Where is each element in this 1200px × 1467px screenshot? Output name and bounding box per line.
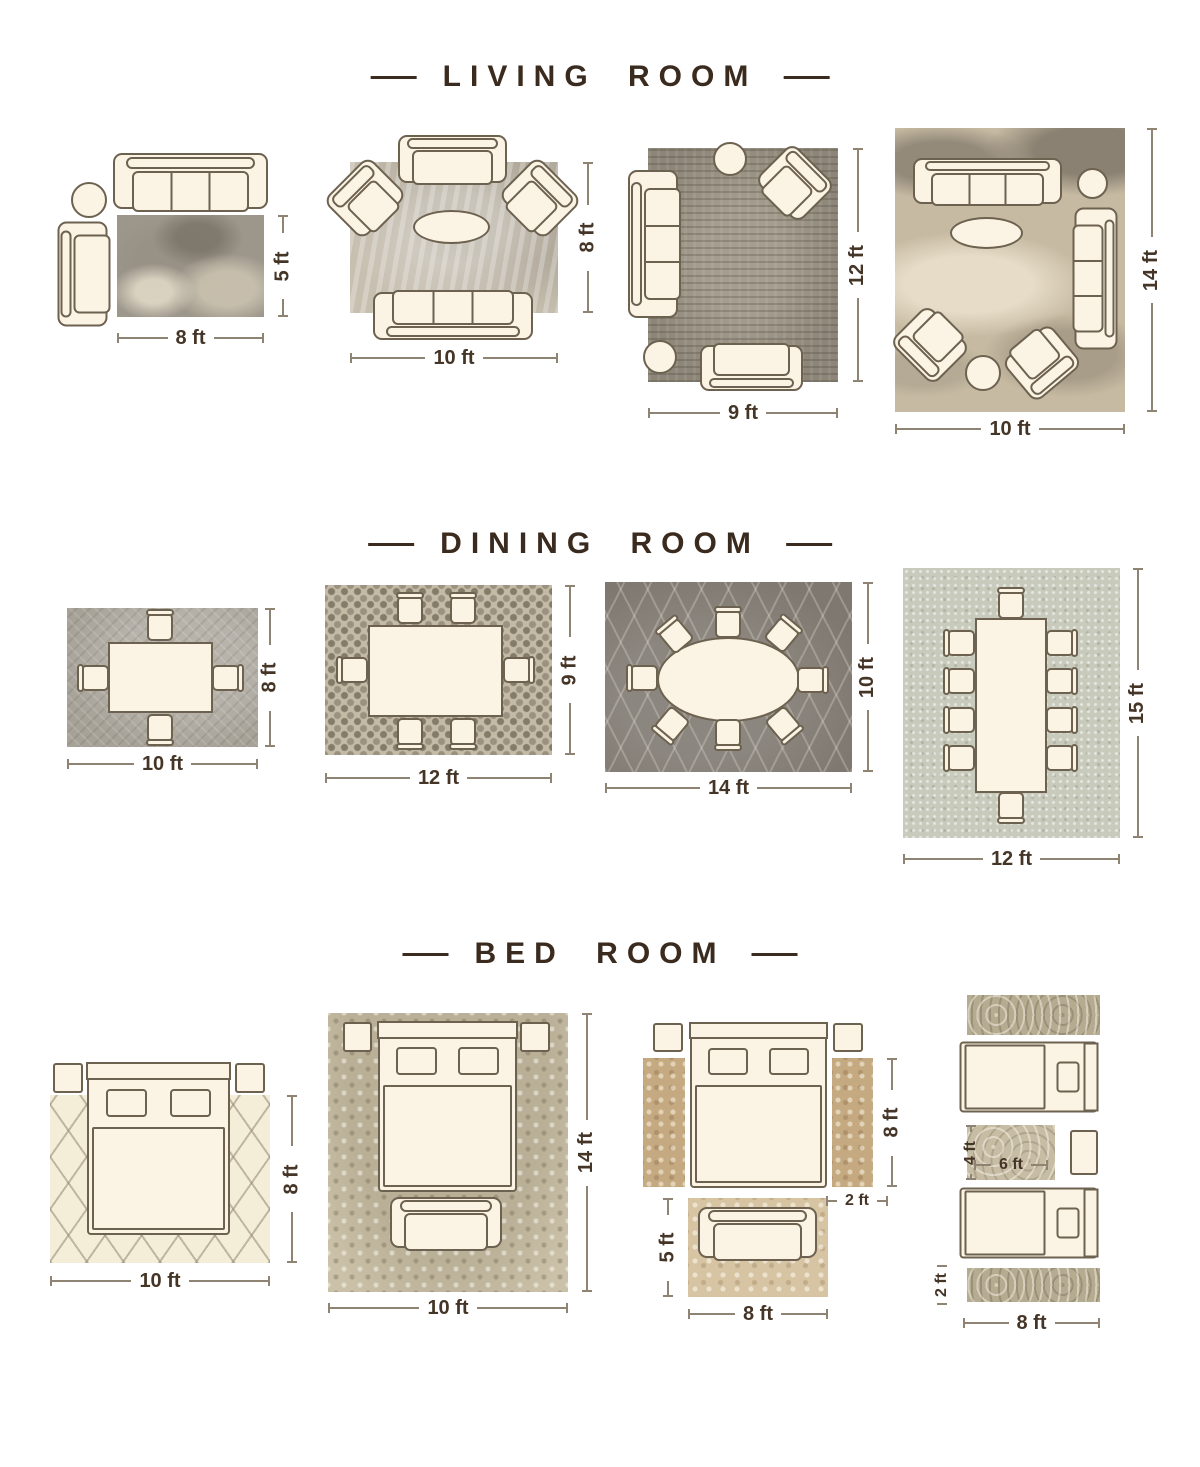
width-dimension: 10 ft [50,1268,270,1294]
dining-table [108,642,213,713]
dining-chair [450,596,476,624]
width-dimension: 8 ft [117,325,264,351]
dimension-line [1055,1322,1101,1324]
dimension-label: 14 ft [576,1132,599,1173]
dimension-line [974,1164,991,1166]
dimension-line [467,777,552,779]
nightstand [833,1023,863,1052]
dimension-label: 8 ft [176,327,206,350]
living-room-title: LIVING ROOM [345,60,856,94]
dimension-line [191,763,258,765]
dimension-line [269,711,271,748]
dimension-line [857,298,859,382]
dimension-line [483,357,558,359]
oval-coffee-table [413,210,490,244]
dimension-line [569,585,571,637]
dimension-line [117,337,168,339]
twin-bed [960,1042,1098,1113]
pillow [458,1047,499,1075]
dining-chair [630,665,658,691]
dining-chair [503,657,531,683]
dimension-line [867,582,869,644]
width-dimension: 14 ft [605,775,852,801]
dimension-label: 14 ft [1141,249,1164,290]
dimension-label: 12 ft [418,767,459,790]
pillow [170,1089,212,1118]
dimension-line [891,1156,893,1188]
runner-height-dimension: 8 ft [879,1058,905,1187]
dimension-line [648,412,720,414]
dimension-label: 6 ft [999,1156,1023,1174]
nightstand [343,1022,372,1052]
dimension-line [67,763,134,765]
dimension-line [587,162,589,205]
pillow [396,1047,437,1075]
dimension-line [1137,736,1139,838]
dimension-label: 8 ft [881,1108,904,1138]
height-dimension: 12 ft [845,148,871,382]
round-side-table [643,340,677,374]
width-dimension: 9 ft [648,400,838,426]
dimension-line [766,412,838,414]
dimension-line [857,148,859,232]
dining-chair [998,591,1024,619]
dining-chair [947,630,975,656]
dimension-line [903,858,983,860]
dining-chair [147,714,173,742]
width-dimension: 10 ft [895,416,1125,442]
dimension-line [688,1313,735,1315]
dimension-line [757,787,852,789]
width-dimension: 10 ft [67,751,258,777]
dimension-label: 8 ft [577,223,600,253]
dining-chair [947,707,975,733]
height-dimension: 8 ft [279,1095,305,1263]
dimension-line [605,787,700,789]
bed-room-title: BED ROOM [377,937,824,971]
pillow [708,1048,748,1075]
rug-8x5 [117,215,264,317]
dining-chair [397,718,423,746]
height-dimension: 8 ft [257,608,283,747]
dimension-line [291,1212,293,1263]
height-dimension: 14 ft [1139,128,1165,412]
dining-chair [147,613,173,641]
dining-table [975,618,1047,793]
height-dimension: 14 ft [574,1013,600,1292]
dimension-line [895,428,981,430]
dimension-label: 9 ft [728,402,758,425]
dining-chair [998,792,1024,820]
title-dash [368,543,414,546]
sofa [373,292,533,340]
dimension-line [826,1200,837,1202]
height-dimension: 15 ft [1125,568,1151,838]
dimension-line [781,1313,828,1315]
dining-room-title: DINING ROOM [342,527,858,561]
dimension-line [1151,128,1153,237]
dimension-label: 8 ft [1017,1312,1047,1335]
width-dimension: 10 ft [350,345,558,371]
dimension-line [1040,858,1120,860]
dimension-label: 10 ft [433,347,474,370]
dimension-line [1031,1164,1048,1166]
dimension-line [569,703,571,755]
dimension-line [189,1280,270,1282]
bed [690,1023,827,1188]
loveseat [398,135,507,183]
dimension-line [891,1058,893,1090]
dimension-line [667,1198,669,1215]
dimension-line [586,1186,588,1293]
dimension-line [477,1307,568,1309]
dimension-line [282,299,284,317]
dimension-label: 8 ft [259,663,282,693]
pillow [1057,1062,1080,1093]
dimension-label: 10 ft [427,1297,468,1320]
dimension-label: 5 ft [657,1233,680,1263]
dimension-label: 10 ft [857,656,880,697]
round-side-table [965,355,1001,391]
width-dimension: 10 ft [328,1295,568,1321]
rug-size-guide: LIVING ROOM 5 ft 8 ft 8 ft 10 ft [0,0,1200,1467]
armchair [58,222,108,327]
sofa [1075,208,1118,350]
pillow [1057,1208,1080,1239]
bed [378,1022,517,1192]
nightstand [1070,1130,1098,1175]
nightstand [53,1063,83,1093]
title-dash [786,543,832,546]
dimension-line [350,357,425,359]
round-side-table [71,182,107,218]
dining-chair [212,665,240,691]
nightstand [235,1063,265,1093]
runner-width-dimension: 2 ft [826,1188,888,1214]
dining-chair [715,719,741,747]
dimension-label: 5 ft [272,251,295,281]
height-dimension: 9 ft [557,585,583,755]
dimension-line [328,1307,419,1309]
bed [87,1063,230,1235]
nightstand [520,1022,550,1052]
dimension-label: 15 ft [1127,682,1150,723]
dimension-label: 12 ft [991,848,1032,871]
dimension-line [269,608,271,645]
sofa [113,153,268,209]
nightstand [653,1023,683,1052]
dimension-line [877,1200,888,1202]
dining-table [368,625,503,717]
bench [390,1197,502,1248]
height-dimension: 10 ft [855,582,881,772]
mat-width-dimension: 6 ft [974,1152,1048,1178]
runner-height-dimension: 2 ft [929,1265,955,1305]
dimension-line [586,1013,588,1120]
height-dimension: 8 ft [575,162,601,313]
dimension-line [970,1174,972,1181]
dimension-label: 14 ft [708,777,749,800]
loveseat [700,345,803,391]
foot-rug-width-dimension: 8 ft [688,1301,828,1327]
title-dash [752,953,798,956]
dimension-label: 9 ft [559,655,582,685]
dining-chair [1046,707,1074,733]
dimension-line [970,1125,972,1132]
dimension-line [587,271,589,314]
round-side-table [713,142,747,176]
title-dash [371,76,417,79]
dining-chair [397,596,423,624]
runner-rug [643,1058,685,1187]
pillow [106,1089,148,1118]
oval-coffee-table [950,217,1023,249]
dimension-line [50,1280,131,1282]
dimension-line [282,215,284,233]
bench [698,1207,817,1258]
dining-chair [797,667,825,693]
dining-chair [1046,668,1074,694]
dimension-label: 10 ft [139,1270,180,1293]
runner-rug [967,995,1100,1035]
dimension-line [325,777,410,779]
height-dimension: 5 ft [270,215,296,317]
dimension-line [1137,568,1139,670]
width-dimension: 12 ft [325,765,552,791]
width-dimension: 12 ft [903,846,1120,872]
dimension-label: 8 ft [281,1164,304,1194]
dimension-line [667,1281,669,1298]
dimension-label: 8 ft [743,1303,773,1326]
dimension-line [214,337,265,339]
dining-chair [947,668,975,694]
title-text: BED ROOM [475,937,726,971]
title-text: LIVING ROOM [443,60,758,94]
dining-chair [947,745,975,771]
dining-chair [81,665,109,691]
dimension-label: 2 ft [845,1192,869,1210]
dimension-label: 12 ft [847,244,870,285]
title-text: DINING ROOM [440,527,760,561]
twin-bed [960,1188,1098,1259]
title-dash [783,76,829,79]
dining-chair [715,610,741,638]
pillow [769,1048,809,1075]
dimension-line [867,710,869,772]
dimension-label: 10 ft [989,418,1030,441]
dining-chair [1046,745,1074,771]
runner-rug [832,1058,873,1187]
foot-rug-height-dimension: 5 ft [655,1198,681,1297]
dining-chair [450,718,476,746]
sofa [913,158,1062,204]
dimension-line [1039,428,1125,430]
dining-chair [340,657,368,683]
dimension-label: 10 ft [142,753,183,776]
runner-width-dimension: 8 ft [963,1310,1100,1336]
title-dash [403,953,449,956]
dining-chair [1046,630,1074,656]
dimension-line [963,1322,1009,1324]
runner-rug [967,1268,1100,1302]
dimension-label: 2 ft [933,1273,951,1297]
round-side-table [1077,168,1108,199]
sofa [628,170,678,318]
dimension-line [291,1095,293,1146]
dimension-line [1151,303,1153,412]
